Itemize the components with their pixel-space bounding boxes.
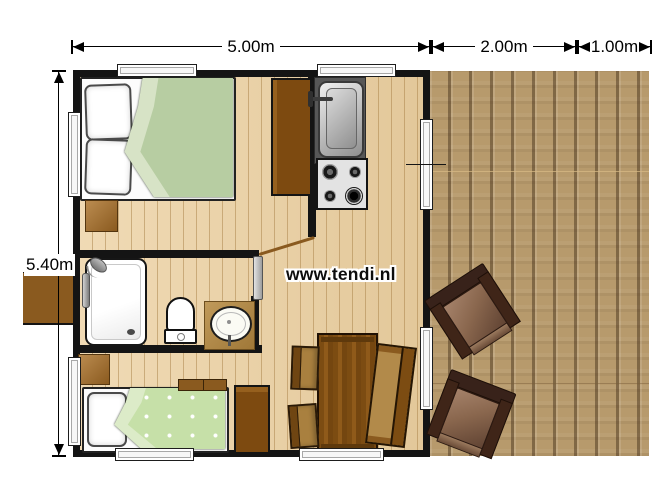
floor-plan: 5.00m 2.00m 1.00m 5.40m	[0, 0, 667, 500]
gas-stove	[316, 158, 368, 210]
kitchen-sink	[318, 81, 364, 158]
window-bottom-dining	[299, 448, 384, 461]
burner-icon	[345, 187, 363, 205]
window-bottom-bedroom2	[115, 448, 194, 461]
dimension-top-main: 5.00m	[71, 38, 431, 56]
toilet	[164, 297, 197, 344]
duvet	[112, 388, 225, 449]
wardrobe	[234, 385, 270, 454]
double-bed	[80, 77, 236, 201]
arrow-right-icon	[564, 42, 575, 52]
drain-icon	[127, 329, 135, 335]
wardrobe	[271, 78, 312, 196]
dimension-left-height: 5.40m	[51, 70, 66, 457]
arrow-up-icon	[54, 72, 64, 83]
dimension-end-bar	[650, 40, 652, 54]
headboard-shelf	[178, 379, 227, 391]
faucet-handle-icon	[308, 91, 313, 107]
dimension-label-width-overhang: 1.00m	[590, 38, 639, 56]
dimension-top-overhang: 1.00m	[577, 38, 652, 56]
burner-icon	[324, 190, 336, 202]
window-right-lower	[420, 327, 433, 410]
dimension-top-veranda: 2.00m	[431, 38, 577, 56]
watermark-url: www.tendi.nl	[286, 264, 396, 285]
faucet-icon	[228, 335, 231, 346]
toilet-bowl	[166, 297, 195, 332]
wall-bathroom-north	[73, 250, 259, 258]
entrance-step	[23, 272, 75, 325]
nightstand	[78, 354, 110, 385]
single-bed	[82, 387, 229, 453]
nightstand	[85, 200, 118, 232]
shower-rail-icon	[82, 273, 90, 308]
burner-icon	[322, 164, 338, 180]
window-top-kitchen	[317, 64, 396, 77]
dimension-end-bar	[52, 455, 66, 457]
bathroom-door-leaf	[253, 256, 263, 300]
dimension-label-height: 5.40m	[24, 254, 75, 276]
washbasin	[210, 306, 252, 342]
arrow-left-icon	[73, 42, 84, 52]
dimension-label-width-main: 5.00m	[222, 38, 279, 56]
dining-chair	[290, 346, 320, 391]
arrow-right-icon	[639, 42, 650, 52]
arrow-down-icon	[54, 444, 64, 455]
window-top-bedroom1	[117, 64, 197, 77]
dimension-label-width-veranda: 2.00m	[475, 38, 532, 56]
window-left-bedroom2	[68, 357, 81, 446]
window-left-bedroom1	[68, 112, 81, 197]
burner-icon	[349, 166, 361, 178]
arrow-left-icon	[579, 42, 590, 52]
window-sill-mark	[406, 164, 446, 165]
arrow-left-icon	[433, 42, 444, 52]
drain-icon	[227, 320, 231, 324]
veranda-plank-seam	[430, 171, 649, 172]
duvet	[120, 78, 233, 197]
dining-chair	[288, 403, 320, 449]
arrow-right-icon	[418, 42, 429, 52]
flush-button-icon	[177, 333, 185, 341]
